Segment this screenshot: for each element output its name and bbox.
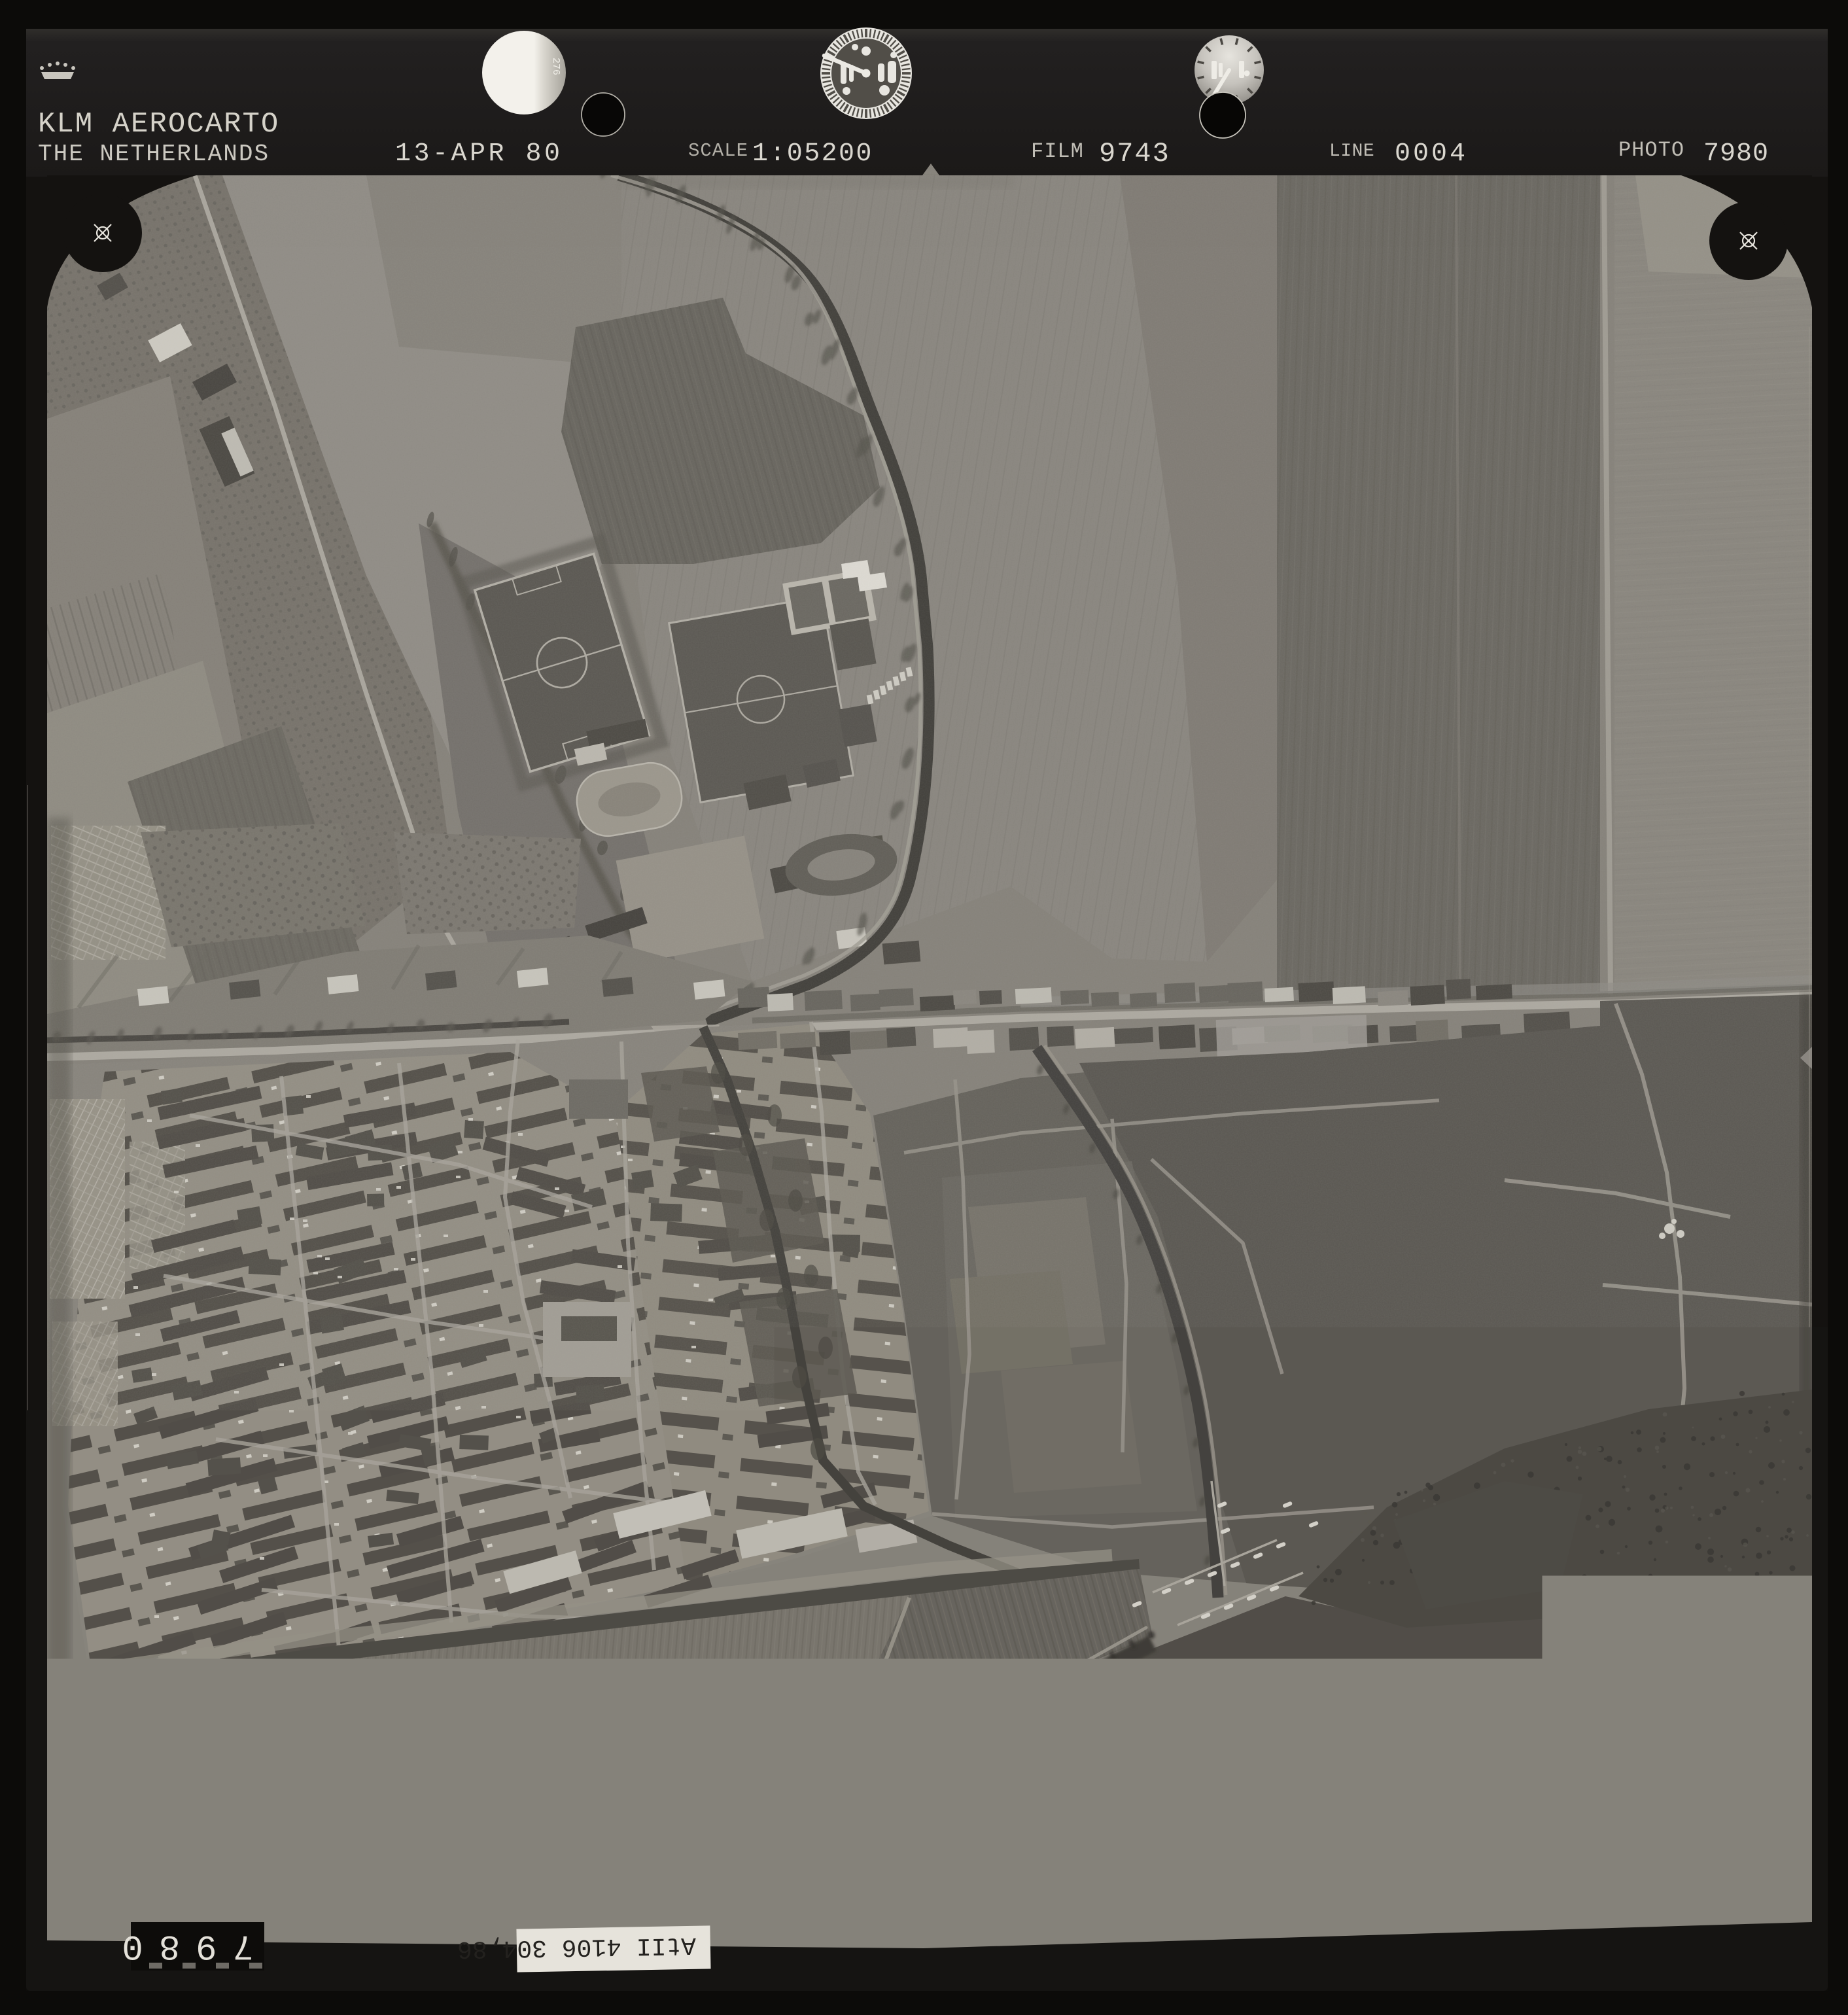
svg-text:1:05200: 1:05200 <box>752 139 873 169</box>
svg-text:LINE: LINE <box>1329 141 1374 162</box>
svg-text:FILM: FILM <box>1031 139 1084 164</box>
svg-text:THE NETHERLANDS: THE NETHERLANDS <box>38 141 270 167</box>
svg-text:SCALE: SCALE <box>688 140 748 162</box>
svg-text:7980: 7980 <box>1703 139 1769 169</box>
svg-text:0004: 0004 <box>1395 139 1468 169</box>
svg-text:AtII 4106 304,86: AtII 4106 304,86 <box>457 1931 697 1963</box>
svg-text:276: 276 <box>550 58 561 75</box>
svg-text:9743: 9743 <box>1099 138 1170 169</box>
svg-text:KLM AEROCARTO: KLM AEROCARTO <box>38 108 279 141</box>
svg-text:PHOTO: PHOTO <box>1618 138 1684 162</box>
svg-text:13-APR 80: 13-APR 80 <box>395 139 563 169</box>
svg-text:7980: 7980 <box>106 1925 254 1965</box>
